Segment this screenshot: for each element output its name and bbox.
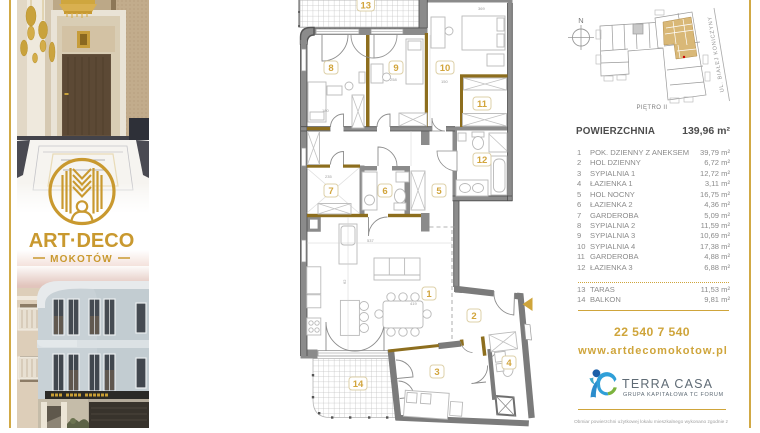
svg-text:369: 369 xyxy=(478,6,485,11)
svg-text:3: 3 xyxy=(434,367,439,378)
svg-text:150: 150 xyxy=(441,79,448,84)
svg-text:4: 4 xyxy=(506,358,512,369)
svg-text:9: 9 xyxy=(393,63,398,74)
svg-text:12: 12 xyxy=(477,155,488,166)
svg-text:62: 62 xyxy=(342,279,347,284)
svg-text:10: 10 xyxy=(440,63,451,74)
svg-text:MOKOTÓW: MOKOTÓW xyxy=(50,252,113,265)
svg-text:11: 11 xyxy=(477,99,488,110)
svg-text:7: 7 xyxy=(328,186,333,197)
svg-text:14: 14 xyxy=(353,379,364,390)
svg-text:1: 1 xyxy=(426,289,432,300)
svg-text:258: 258 xyxy=(390,77,397,82)
svg-text:180: 180 xyxy=(322,108,329,113)
svg-text:ART·DECO: ART·DECO xyxy=(29,230,135,252)
svg-text:537: 537 xyxy=(367,238,374,243)
svg-text:13: 13 xyxy=(361,1,372,12)
svg-text:N: N xyxy=(578,16,583,25)
svg-text:6: 6 xyxy=(382,186,387,197)
svg-text:GRUPA KAPITAŁOWA TC FORUM: GRUPA KAPITAŁOWA TC FORUM xyxy=(623,392,724,398)
svg-text:2: 2 xyxy=(471,311,476,322)
svg-text:TERRA CASA: TERRA CASA xyxy=(622,377,713,391)
svg-text:235: 235 xyxy=(325,174,332,179)
svg-text:5: 5 xyxy=(436,186,442,197)
svg-text:8: 8 xyxy=(328,63,333,74)
svg-text:419: 419 xyxy=(410,301,417,306)
